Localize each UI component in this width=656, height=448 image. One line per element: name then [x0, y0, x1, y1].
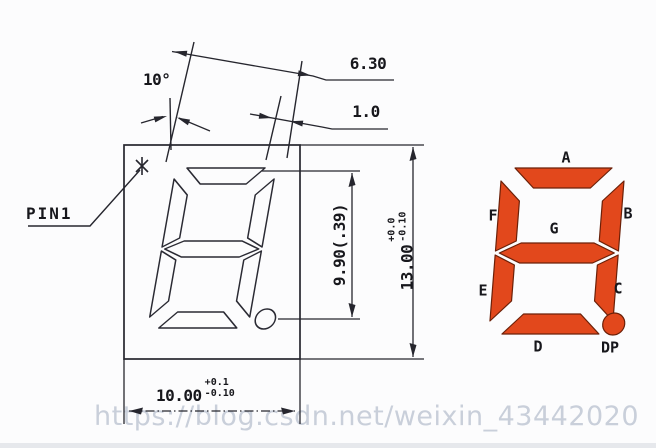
outline-segment-e: [150, 251, 178, 317]
segment-g: [499, 243, 616, 263]
segment-label-c: C: [613, 282, 622, 297]
segment-label-g: G: [549, 222, 558, 237]
digit-height-dimension-label: 9.90(.39): [332, 204, 348, 286]
segment-label-dp: DP: [601, 341, 619, 356]
package-width-dimension-label: 10.00 +0.1 -0.10: [156, 377, 235, 404]
segment-decimal-point: [602, 313, 626, 335]
segment-gap-dimension-label: 6.30: [340, 56, 396, 72]
segment-label-e: E: [478, 284, 487, 299]
outline-segment-c: [234, 251, 262, 317]
segment-e: [490, 255, 515, 321]
segment-label-f: F: [488, 209, 497, 224]
angle-dimension-label: 10°: [143, 72, 170, 88]
package-width-tolerance: +0.1 -0.10: [205, 377, 235, 399]
construction-lines: [166, 42, 302, 162]
package-height-dimension-label: 13.00 +0.0 -0.10: [387, 212, 416, 291]
segment-label-a: A: [561, 151, 570, 166]
datasheet-diagram-root: https://blog.csdn.net/weixin_43442020: [0, 0, 656, 448]
segment-b: [598, 181, 624, 251]
outline-segment-f: [162, 179, 190, 247]
outline-segment-b: [246, 179, 274, 247]
outline-segment-g: [163, 241, 260, 257]
segment-label-d: D: [533, 340, 542, 355]
segment-d: [502, 314, 601, 334]
segment-width-dimension-label: 1.0: [342, 104, 390, 120]
image-bottom-edge: [0, 443, 656, 448]
outline-decimal-point: [254, 309, 278, 329]
package-outline: [124, 145, 300, 359]
outline-segment-a: [184, 168, 265, 184]
digit-outline: [148, 168, 302, 329]
pin1-label: PIN1: [26, 206, 73, 222]
package-height-tolerance: +0.0 -0.10: [387, 212, 409, 242]
outline-segment-d: [159, 312, 240, 328]
segment-digit: [489, 168, 637, 335]
segment-label-b: B: [623, 207, 632, 222]
segment-a: [513, 168, 612, 188]
segment-f: [495, 181, 521, 251]
